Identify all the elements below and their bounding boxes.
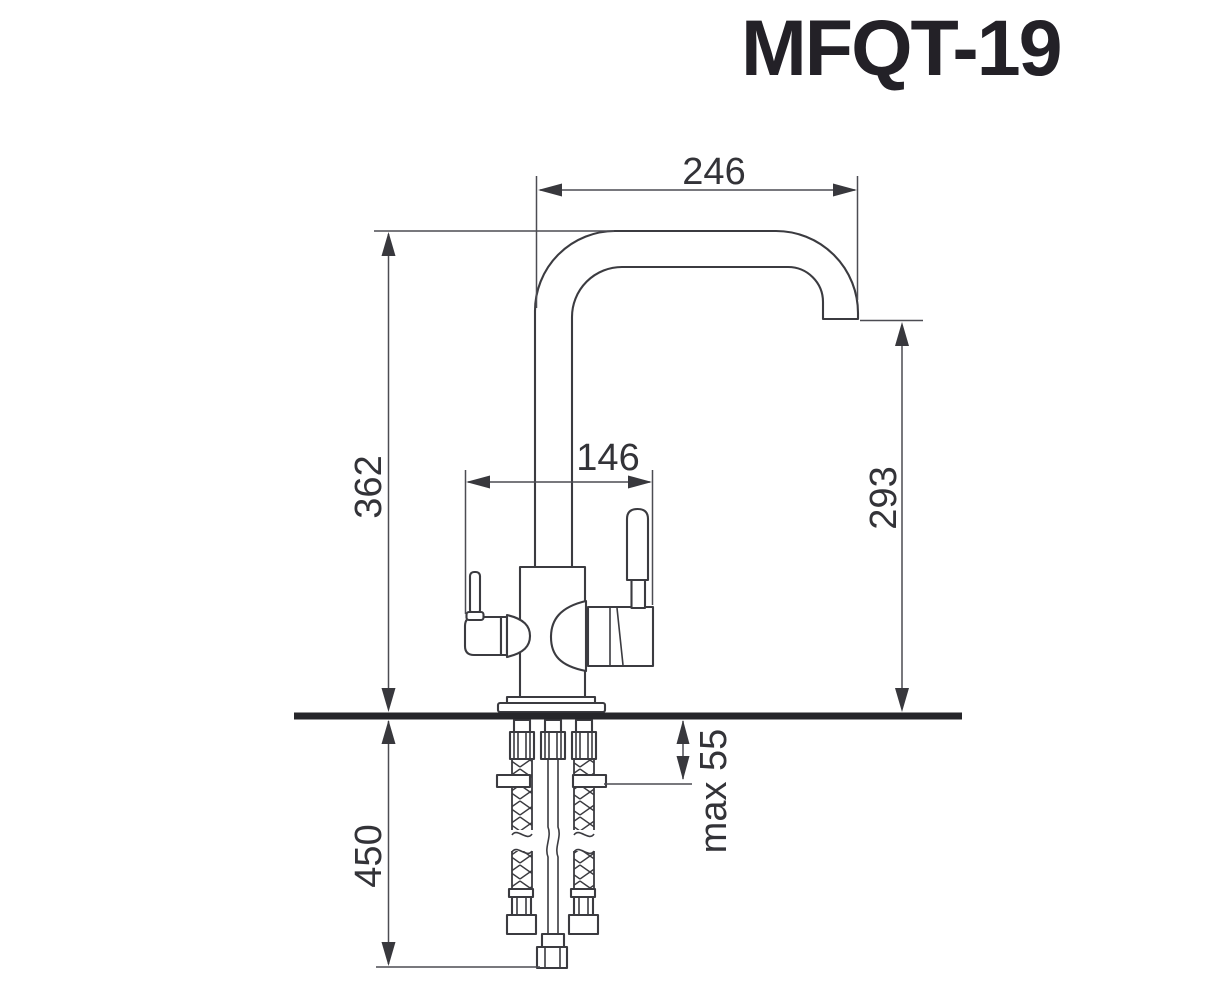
- dim-label-max-55: max 55: [693, 729, 735, 854]
- technical-drawing: 246 362 146 293: [0, 0, 1223, 1000]
- faucet-spec-sheet: MFQT-19: [0, 0, 1223, 1000]
- left-valve-body: [465, 617, 501, 655]
- right-supply-hose: [569, 720, 606, 934]
- supply-hoses-group: [497, 720, 606, 968]
- left-knob-base: [467, 612, 484, 620]
- dim-label-450: 450: [348, 824, 390, 887]
- right-lever-neck: [632, 577, 646, 608]
- left-supply-hose: [497, 720, 536, 934]
- middle-supply-pipe: [537, 720, 567, 968]
- dim-label-362: 362: [348, 455, 390, 518]
- dim-label-293: 293: [863, 466, 905, 529]
- dim-label-146: 146: [576, 437, 639, 479]
- base-flange-bottom: [498, 703, 605, 712]
- faucet-spout: [535, 231, 858, 568]
- dimension-counter-thickness: max 55: [604, 720, 735, 853]
- right-mounting-tab: [573, 775, 606, 787]
- left-knob-stick: [470, 572, 480, 614]
- left-mounting-tab: [497, 775, 530, 787]
- faucet-body-group: [465, 231, 858, 712]
- dim-label-246: 246: [682, 151, 745, 193]
- right-lever-handle: [627, 509, 648, 580]
- dimension-outlet-height: 293: [860, 321, 923, 713]
- countertop-deck-line: [294, 713, 962, 720]
